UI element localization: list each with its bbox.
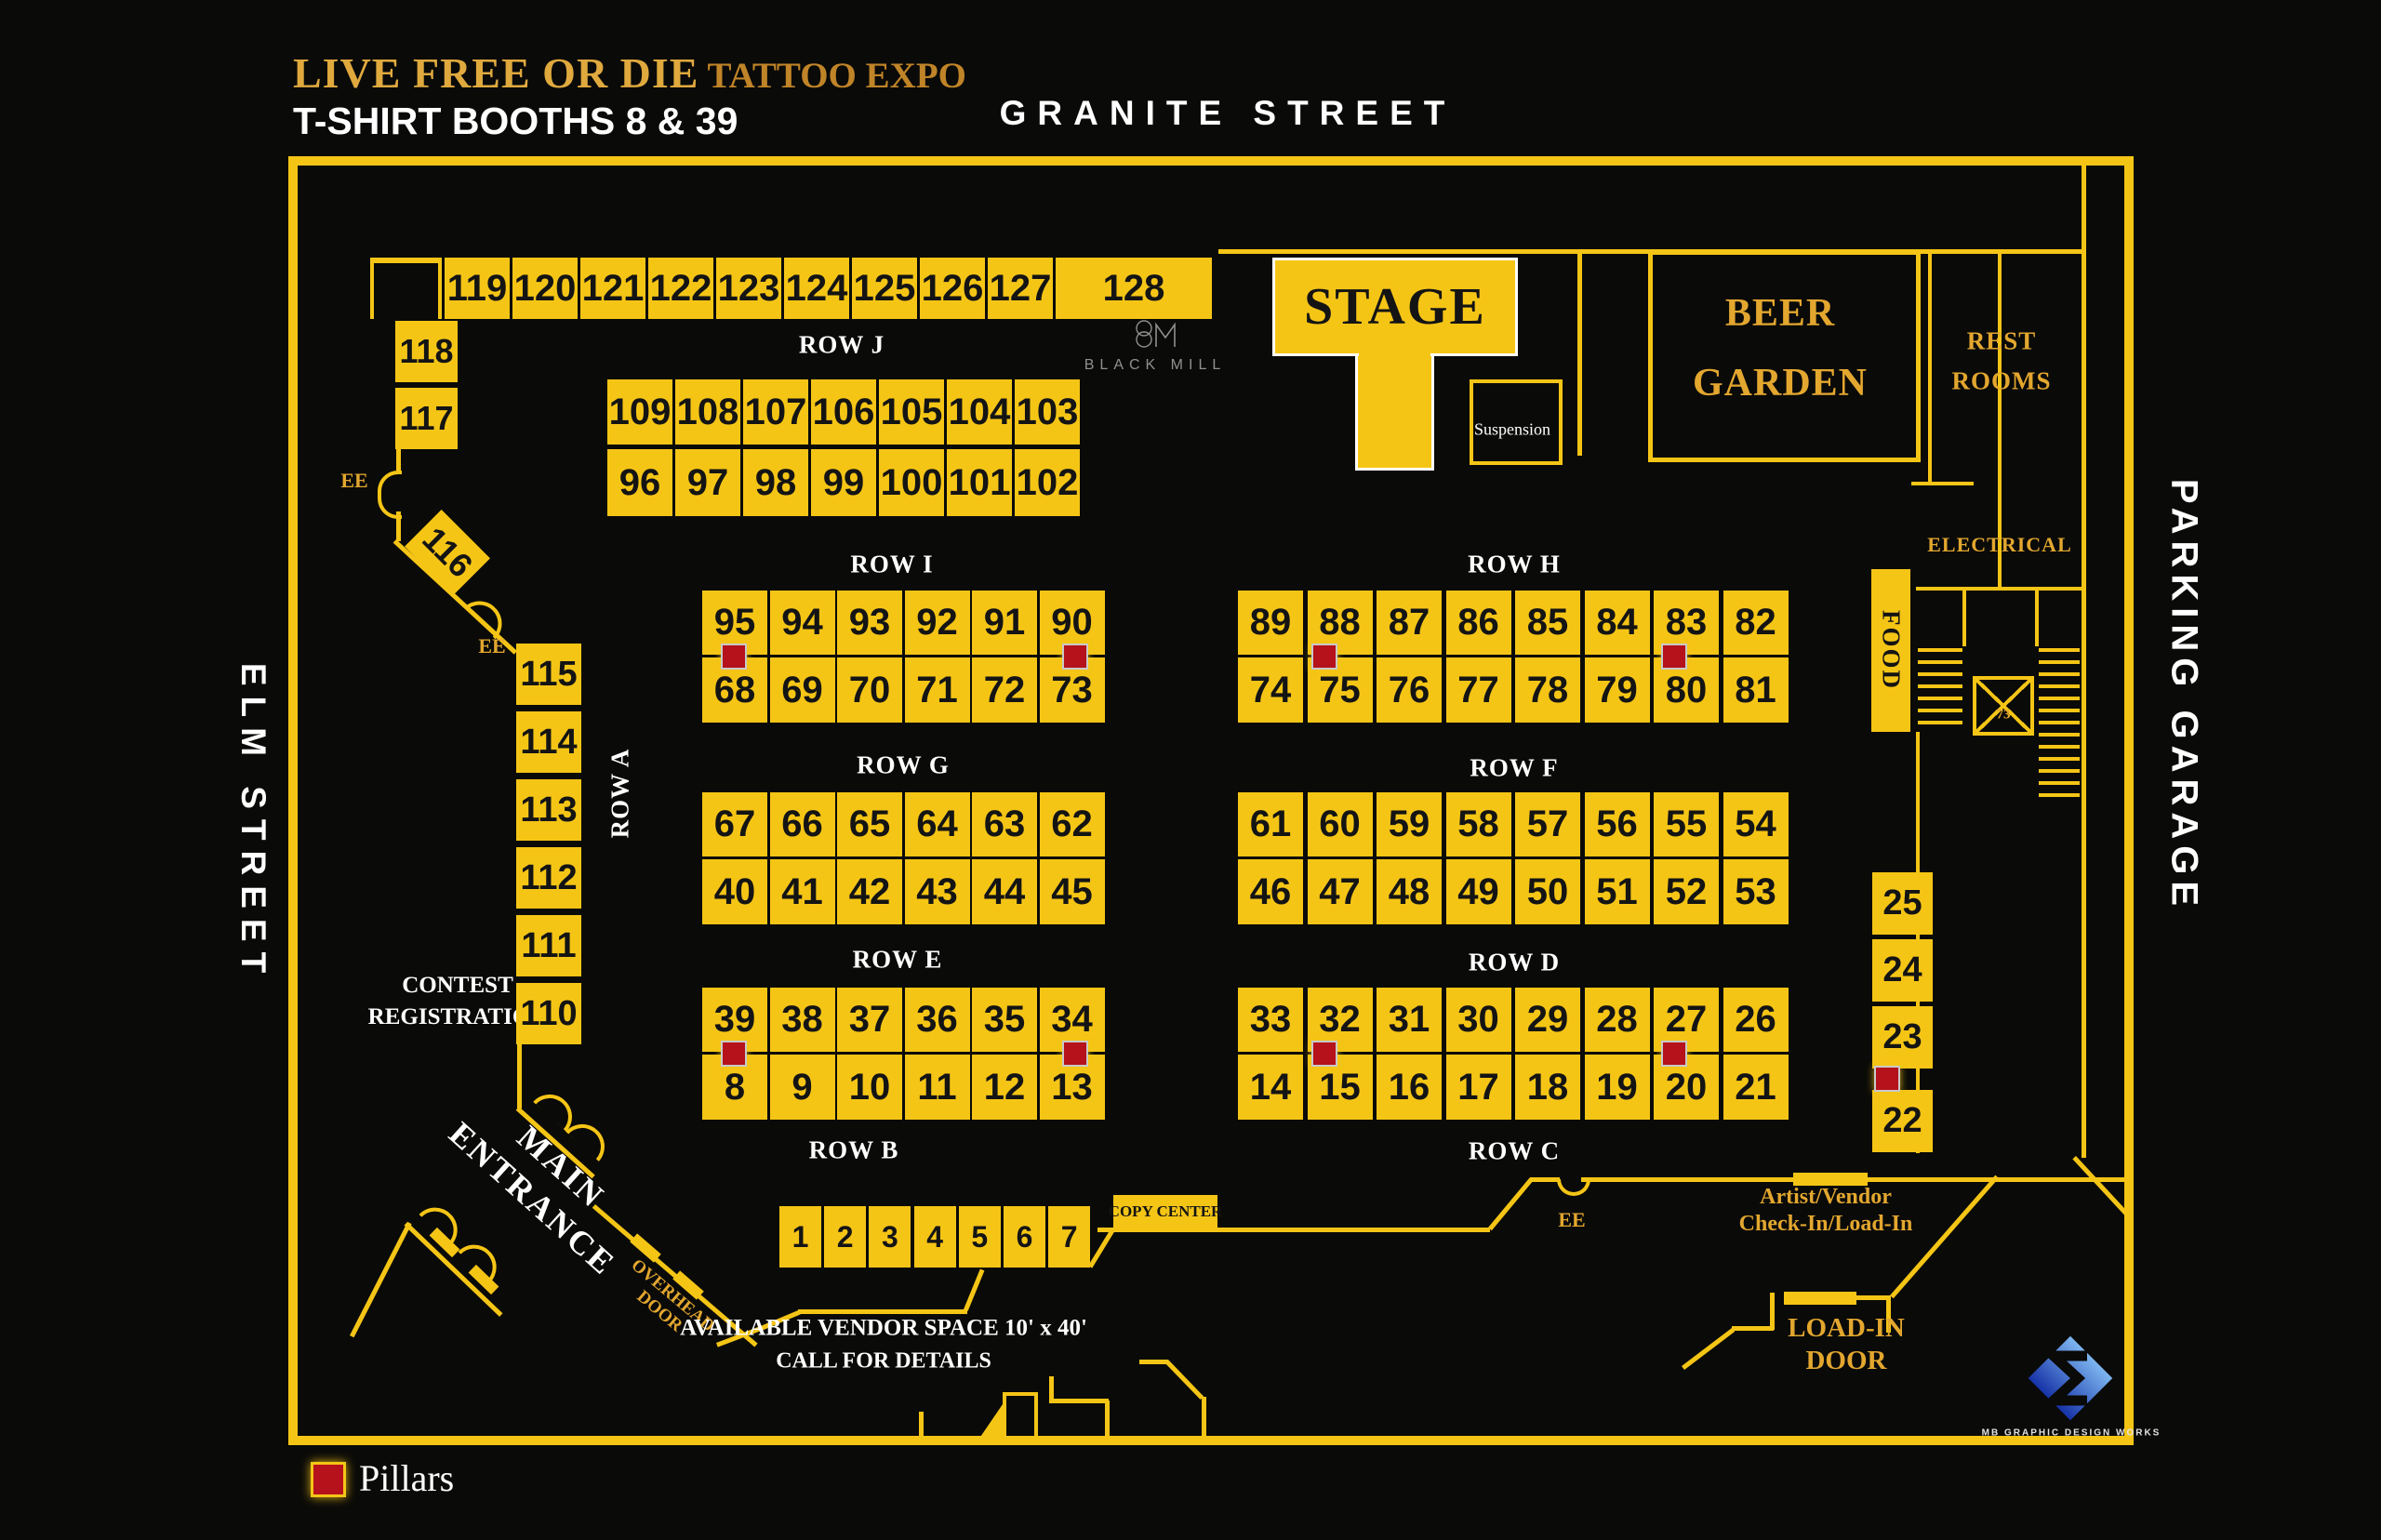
booth-114: 114	[516, 711, 581, 773]
stage-platform-stem	[1355, 356, 1434, 471]
vendor-space-label: AVAILABLE VENDOR SPACE 10' x 40' CALL FO…	[680, 1316, 1087, 1374]
wall-segment	[517, 1043, 522, 1109]
booth-100: 100	[879, 449, 944, 516]
wall-segment	[1139, 1360, 1168, 1364]
booth-9: 9	[770, 1055, 835, 1120]
booth-53: 53	[1723, 859, 1789, 924]
booth-128: 128	[1056, 258, 1212, 319]
vendor-space-line2: CALL FOR DETAILS	[680, 1349, 1087, 1374]
wall-triangle	[975, 1404, 1003, 1445]
booth-22: 22	[1872, 1090, 1933, 1152]
booth-58: 58	[1446, 792, 1511, 856]
rest-rooms-label: REST	[1967, 327, 2037, 356]
wall-segment	[2035, 589, 2039, 646]
stairs	[2039, 648, 2080, 797]
booth-82: 82	[1723, 591, 1789, 655]
wall-segment	[1770, 1293, 1775, 1330]
wall-segment	[396, 511, 401, 541]
pillar	[1661, 1041, 1687, 1067]
booth-81: 81	[1723, 657, 1789, 723]
booth-112: 112	[516, 847, 581, 909]
booth-46: 46	[1238, 859, 1303, 924]
black-mill-wordmark: BLACK MILL	[1084, 357, 1226, 374]
booth-36: 36	[905, 988, 970, 1052]
booth-72: 72	[972, 657, 1037, 723]
booth-14: 14	[1238, 1055, 1303, 1120]
booth-127: 127	[988, 258, 1053, 319]
artist-vendor-line1: Artist/Vendor	[1739, 1185, 1913, 1210]
booth-62: 62	[1040, 792, 1105, 856]
expo-title-main: LIVE FREE OR DIE	[293, 49, 698, 97]
booth-61: 61	[1238, 792, 1303, 856]
pillar	[721, 1041, 747, 1067]
load-in-line1: LOAD-IN	[1788, 1313, 1905, 1344]
booth-84: 84	[1585, 591, 1650, 655]
artist-vendor-line2: Check-In/Load-In	[1739, 1212, 1913, 1237]
booth-4: 4	[914, 1206, 956, 1268]
wall-segment	[1530, 1177, 1560, 1182]
booth-6: 6	[1004, 1206, 1045, 1268]
booth-104: 104	[947, 379, 1012, 445]
rest-rooms-label: ROOMS	[1951, 367, 2051, 396]
strip-notch	[370, 258, 442, 319]
booth-76: 76	[1377, 657, 1442, 723]
pillar-legend-label: Pillars	[359, 1456, 454, 1500]
booth-5: 5	[959, 1206, 1001, 1268]
food-label: FOOD	[1877, 610, 1906, 690]
booth-37: 37	[837, 988, 902, 1052]
booth-48: 48	[1377, 859, 1442, 924]
ee-label: EE	[340, 469, 367, 493]
booth-26: 26	[1723, 988, 1789, 1052]
elevator-label: 73	[1997, 708, 2011, 724]
wall-segment	[1916, 587, 2083, 591]
booth-101: 101	[947, 449, 1012, 516]
elevator: 73	[1973, 676, 2034, 736]
wall-segment	[1962, 589, 1966, 646]
booth-122: 122	[648, 258, 713, 319]
mb-logo-icon	[2024, 1335, 2117, 1425]
wall-segment	[1732, 1326, 1774, 1331]
booth-119: 119	[445, 258, 510, 319]
artist-vendor-label: Artist/Vendor Check-In/Load-In	[1739, 1185, 1913, 1237]
vendor-space-line1: AVAILABLE VENDOR SPACE 10' x 40'	[680, 1316, 1087, 1342]
booth-30: 30	[1446, 988, 1511, 1052]
wall-segment	[1854, 1295, 1891, 1300]
booth-124: 124	[784, 258, 849, 319]
booth-59: 59	[1377, 792, 1442, 856]
booth-31: 31	[1377, 988, 1442, 1052]
booth-97: 97	[675, 449, 740, 516]
booth-49: 49	[1446, 859, 1511, 924]
booth-28: 28	[1585, 988, 1650, 1052]
booth-110: 110	[516, 983, 581, 1044]
stage-seam-patch	[1359, 350, 1430, 361]
booth-71: 71	[905, 657, 970, 723]
booth-19: 19	[1585, 1055, 1650, 1120]
booth-21: 21	[1723, 1055, 1789, 1120]
ee-label: EE	[478, 634, 505, 658]
booth-118: 118	[395, 321, 458, 382]
booth-38: 38	[770, 988, 835, 1052]
pillar	[1062, 1041, 1088, 1067]
booth-40: 40	[702, 859, 767, 924]
booth-78: 78	[1515, 657, 1580, 723]
row-label-i: ROW I	[850, 551, 933, 579]
booth-74: 74	[1238, 657, 1303, 723]
booth-91: 91	[972, 591, 1037, 655]
booth-10: 10	[837, 1055, 902, 1120]
booth-123: 123	[716, 258, 781, 319]
stage-label: STAGE	[1304, 277, 1486, 337]
booth-79: 79	[1585, 657, 1650, 723]
booth-105: 105	[879, 379, 944, 445]
booth-63: 63	[972, 792, 1037, 856]
booth-16: 16	[1377, 1055, 1442, 1120]
booth-1: 1	[779, 1206, 821, 1268]
ee-label: EE	[1558, 1208, 1585, 1232]
row-label-g: ROW G	[857, 751, 950, 780]
wall-segment	[1202, 1397, 1206, 1441]
booth-11: 11	[905, 1055, 970, 1120]
booth-41: 41	[770, 859, 835, 924]
booth-86: 86	[1446, 591, 1511, 655]
load-in-door-bar	[1784, 1292, 1856, 1305]
row-label-j: ROW J	[799, 331, 885, 360]
booth-126: 126	[920, 258, 985, 319]
booth-17: 17	[1446, 1055, 1511, 1120]
expo-subtitle: T-SHIRT BOOTHS 8 & 39	[293, 100, 966, 143]
booth-125: 125	[852, 258, 917, 319]
booth-113: 113	[516, 779, 581, 841]
stairs	[1918, 648, 1962, 730]
booth-69: 69	[770, 657, 835, 723]
booth-47: 47	[1308, 859, 1373, 924]
pillar	[1311, 644, 1337, 670]
booth-108: 108	[675, 379, 740, 445]
booth-92: 92	[905, 591, 970, 655]
booth-109: 109	[607, 379, 672, 445]
booth-65: 65	[837, 792, 902, 856]
wall-box	[1003, 1392, 1038, 1445]
booth-87: 87	[1377, 591, 1442, 655]
black-mill-logo	[1131, 316, 1179, 360]
booth-117: 117	[395, 388, 458, 449]
mb-logo-caption: MB GRAPHIC DESIGN WORKS	[1982, 1428, 2162, 1439]
booth-50: 50	[1515, 859, 1580, 924]
booth-55: 55	[1654, 792, 1719, 856]
booth-60: 60	[1308, 792, 1373, 856]
booth-25: 25	[1872, 872, 1933, 935]
booth-3: 3	[869, 1206, 911, 1268]
load-in-line2: DOOR	[1788, 1346, 1905, 1376]
booth-77: 77	[1446, 657, 1511, 723]
row-label-f: ROW F	[1470, 754, 1558, 783]
suspension-label: Suspension	[1474, 420, 1550, 440]
strip-notch-inner	[374, 263, 438, 319]
wall-segment	[1577, 249, 1582, 456]
row-label-h: ROW H	[1468, 551, 1561, 579]
booth-18: 18	[1515, 1055, 1580, 1120]
booth-111: 111	[516, 915, 581, 976]
booth-96: 96	[607, 449, 672, 516]
copy-center-label: COPY CENTER	[1109, 1202, 1223, 1221]
floor-plan: LIVE FREE OR DIE TATTOO EXPO T-SHIRT BOO…	[0, 0, 2381, 1540]
wall-segment	[1097, 1228, 1490, 1232]
expo-title-accent: TATTOO EXPO	[698, 56, 966, 96]
load-in-door-label: LOAD-IN DOOR	[1788, 1313, 1905, 1376]
booth-44: 44	[972, 859, 1037, 924]
street-top: GRANITE STREET	[1000, 94, 1457, 133]
wall-segment	[396, 449, 401, 472]
booth-70: 70	[837, 657, 902, 723]
booth-42: 42	[837, 859, 902, 924]
booth-103: 103	[1015, 379, 1080, 445]
wall-segment	[798, 1309, 967, 1314]
booth-33: 33	[1238, 988, 1303, 1052]
pillar	[1062, 644, 1088, 670]
street-right: PARKING GARAGE	[2163, 479, 2205, 912]
wall-segment	[2082, 160, 2086, 1158]
booth-121: 121	[580, 258, 645, 319]
booth-85: 85	[1515, 591, 1580, 655]
booth-57: 57	[1515, 792, 1580, 856]
booth-120: 120	[512, 258, 578, 319]
booth-52: 52	[1654, 859, 1719, 924]
street-left: ELM STREET	[233, 663, 273, 983]
booth-2: 2	[824, 1206, 866, 1268]
booth-35: 35	[972, 988, 1037, 1052]
booth-99: 99	[811, 449, 876, 516]
booth-12: 12	[972, 1055, 1037, 1120]
row-label-e: ROW E	[853, 946, 943, 975]
black-mill-icon	[1131, 316, 1179, 355]
row-label-b: ROW B	[809, 1136, 899, 1165]
beer-garden-box	[1648, 250, 1921, 462]
booth-54: 54	[1723, 792, 1789, 856]
booth-43: 43	[905, 859, 970, 924]
pillar	[1661, 644, 1687, 670]
wall-segment	[1928, 250, 1932, 484]
booth-93: 93	[837, 591, 902, 655]
booth-66: 66	[770, 792, 835, 856]
booth-64: 64	[905, 792, 970, 856]
pillar	[1874, 1066, 1900, 1092]
booth-24: 24	[1872, 939, 1933, 1002]
booth-29: 29	[1515, 988, 1580, 1052]
wall-segment	[1049, 1399, 1109, 1403]
booth-107: 107	[743, 379, 808, 445]
wall-segment	[1911, 482, 1974, 485]
booth-106: 106	[811, 379, 876, 445]
booth-98: 98	[743, 449, 808, 516]
booth-94: 94	[770, 591, 835, 655]
booth-56: 56	[1585, 792, 1650, 856]
pillar	[721, 644, 747, 670]
beer-garden-label: BEER	[1725, 291, 1835, 336]
mb-logo	[2024, 1335, 2117, 1429]
booth-51: 51	[1585, 859, 1650, 924]
pillar	[1311, 1041, 1337, 1067]
beer-garden-label: GARDEN	[1693, 361, 1868, 405]
booth-23: 23	[1872, 1006, 1933, 1069]
electrical-label: ELECTRICAL	[1927, 533, 2071, 557]
booth-102: 102	[1015, 449, 1080, 516]
pillar-legend-swatch	[311, 1462, 346, 1497]
booth-115: 115	[516, 644, 581, 705]
row-label-d: ROW D	[1469, 949, 1560, 977]
booth-67: 67	[702, 792, 767, 856]
row-label-a: ROW A	[606, 749, 635, 839]
check-in-door-bar	[1793, 1173, 1868, 1186]
booth-45: 45	[1040, 859, 1105, 924]
booth-89: 89	[1238, 591, 1303, 655]
wall-segment	[919, 1412, 924, 1445]
row-label-c: ROW C	[1469, 1137, 1560, 1166]
wall-segment	[1105, 1401, 1110, 1441]
expo-title: LIVE FREE OR DIE TATTOO EXPO T-SHIRT BOO…	[293, 48, 966, 143]
booth-7: 7	[1048, 1206, 1090, 1268]
